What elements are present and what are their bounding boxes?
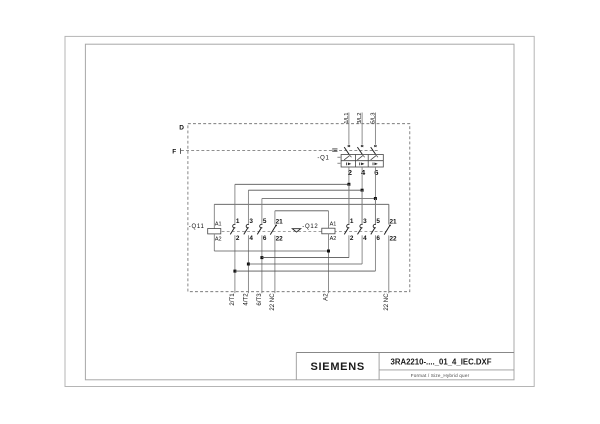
svg-text:22 NC: 22 NC	[269, 293, 276, 311]
svg-text:1: 1	[350, 218, 354, 225]
svg-text:22: 22	[390, 235, 398, 242]
svg-text:6: 6	[376, 235, 380, 242]
svg-text:3: 3	[363, 218, 367, 225]
svg-text:A2: A2	[215, 236, 222, 242]
svg-text:A2: A2	[323, 293, 330, 301]
svg-text:1/L1: 1/L1	[344, 113, 350, 124]
svg-text:6/T3: 6/T3	[256, 293, 263, 306]
svg-text:SIEMENS: SIEMENS	[310, 361, 364, 373]
svg-text:2/T1: 2/T1	[229, 293, 236, 306]
svg-text:A1: A1	[215, 222, 222, 228]
svg-text:-Q11: -Q11	[189, 224, 205, 230]
svg-text:Format / Size_Hybrid quer: Format / Size_Hybrid quer	[411, 373, 470, 378]
svg-text:A2: A2	[330, 236, 337, 242]
svg-text:-Q12: -Q12	[302, 224, 318, 230]
svg-text:4: 4	[363, 235, 367, 242]
svg-text:3: 3	[249, 218, 253, 225]
svg-text:2: 2	[350, 235, 354, 242]
svg-text:3/L2: 3/L2	[357, 113, 363, 124]
svg-text:21: 21	[390, 218, 398, 225]
svg-text:5: 5	[376, 218, 380, 225]
svg-text:21: 21	[276, 218, 284, 225]
svg-text:D: D	[179, 124, 184, 131]
svg-text:F: F	[172, 149, 176, 156]
svg-text:6: 6	[374, 168, 378, 177]
svg-text:22: 22	[276, 235, 284, 242]
svg-text:3RA2210-...._01_4_IEC.DXF: 3RA2210-...._01_4_IEC.DXF	[391, 358, 492, 367]
svg-text:22 NC: 22 NC	[383, 293, 390, 311]
svg-text:-Q1: -Q1	[317, 156, 329, 162]
svg-text:2: 2	[348, 168, 352, 177]
svg-text:6: 6	[263, 235, 267, 242]
svg-text:A1: A1	[330, 222, 337, 228]
svg-text:5/L3: 5/L3	[370, 113, 376, 124]
svg-text:1: 1	[236, 218, 240, 225]
svg-text:2: 2	[236, 235, 240, 242]
svg-text:4: 4	[249, 235, 253, 242]
svg-text:5: 5	[263, 218, 267, 225]
svg-text:4/T2: 4/T2	[243, 293, 250, 306]
